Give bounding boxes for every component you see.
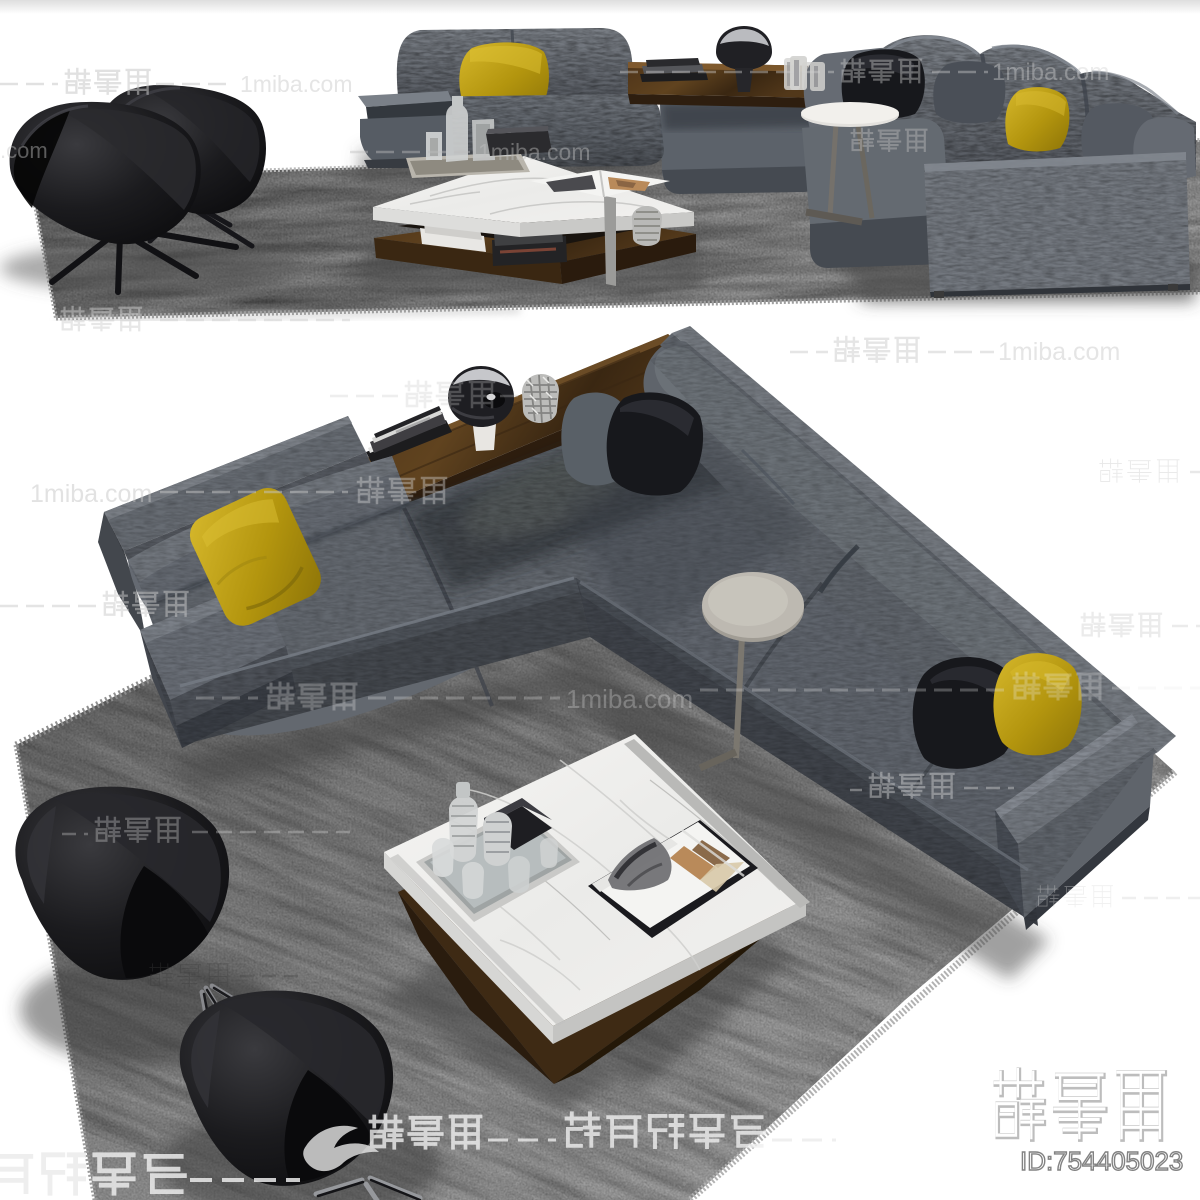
- svg-text:1miba.com: 1miba.com: [240, 71, 352, 97]
- svg-text:ID:754405023: ID:754405023: [1020, 1146, 1183, 1176]
- svg-text:1miba.com: 1miba.com: [478, 139, 590, 165]
- svg-text:1miba.com: 1miba.com: [566, 684, 693, 714]
- svg-text:1miba.com: 1miba.com: [992, 59, 1109, 86]
- svg-text:.com: .com: [0, 138, 48, 163]
- svg-text:1miba.com: 1miba.com: [998, 338, 1120, 366]
- svg-text:1miba.com: 1miba.com: [30, 480, 152, 508]
